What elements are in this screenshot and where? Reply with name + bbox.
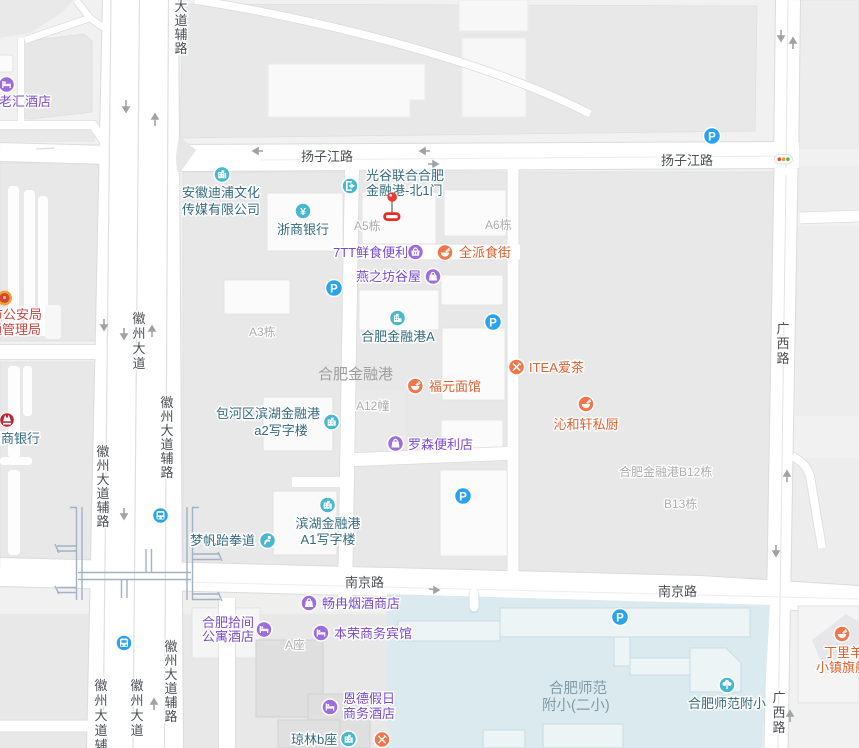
svg-text:a2写字楼: a2写字楼 bbox=[254, 423, 307, 438]
svg-text:畅冉烟酒商店: 畅冉烟酒商店 bbox=[322, 596, 400, 611]
svg-text:传媒有限公司: 传媒有限公司 bbox=[182, 202, 260, 217]
svg-text:大: 大 bbox=[130, 708, 143, 723]
svg-text:福元面馆: 福元面馆 bbox=[429, 379, 481, 394]
svg-text:金融港-北1门: 金融港-北1门 bbox=[366, 183, 443, 198]
svg-text:扬子江路: 扬子江路 bbox=[301, 149, 353, 164]
svg-text:丁里羊: 丁里羊 bbox=[824, 645, 859, 660]
svg-text:辅: 辅 bbox=[164, 695, 177, 710]
svg-text:商务酒店: 商务酒店 bbox=[343, 706, 395, 721]
svg-text:路: 路 bbox=[160, 465, 173, 480]
svg-text:琼林b座: 琼林b座 bbox=[291, 732, 337, 747]
svg-text:ITEA爱茶: ITEA爱茶 bbox=[529, 360, 584, 375]
svg-text:徽: 徽 bbox=[164, 639, 177, 654]
svg-text:沁和轩私厨: 沁和轩私厨 bbox=[553, 417, 618, 432]
svg-text:A1写字楼: A1写字楼 bbox=[301, 532, 356, 547]
svg-text:梦帆跆拳道: 梦帆跆拳道 bbox=[190, 533, 255, 548]
svg-text:公寓酒店: 公寓酒店 bbox=[202, 629, 254, 644]
svg-text:合肥金融港: 合肥金融港 bbox=[318, 366, 393, 383]
svg-text:南京路: 南京路 bbox=[658, 584, 697, 599]
svg-text:合肥师范: 合肥师范 bbox=[549, 680, 607, 697]
svg-text:道: 道 bbox=[174, 13, 187, 28]
svg-text:光谷联合合肥: 光谷联合合肥 bbox=[366, 168, 444, 183]
svg-text:A座: A座 bbox=[285, 637, 305, 652]
svg-text:包河区滨湖金融港: 包河区滨湖金融港 bbox=[216, 406, 320, 421]
svg-text:辅: 辅 bbox=[96, 500, 109, 515]
svg-text:南京路: 南京路 bbox=[345, 575, 384, 590]
svg-text:州: 州 bbox=[94, 693, 107, 708]
svg-text:西: 西 bbox=[776, 336, 789, 351]
svg-text:路: 路 bbox=[96, 514, 109, 529]
svg-text:市公安局: 市公安局 bbox=[0, 307, 42, 322]
svg-text:全派食街: 全派食街 bbox=[459, 245, 511, 260]
svg-text:道: 道 bbox=[132, 356, 145, 371]
svg-text:州: 州 bbox=[130, 693, 143, 708]
svg-text:州: 州 bbox=[160, 409, 173, 424]
svg-text:大: 大 bbox=[94, 708, 107, 723]
svg-text:安徽迪浦文化: 安徽迪浦文化 bbox=[182, 185, 260, 200]
svg-text:合肥拾间: 合肥拾间 bbox=[202, 615, 254, 630]
svg-text:大: 大 bbox=[96, 472, 109, 487]
svg-text:徽: 徽 bbox=[160, 395, 173, 410]
svg-text:燕之坊谷屋: 燕之坊谷屋 bbox=[356, 269, 421, 284]
svg-text:徽: 徽 bbox=[94, 678, 107, 693]
svg-text:浙商银行: 浙商银行 bbox=[277, 222, 329, 237]
svg-text:辅: 辅 bbox=[174, 27, 187, 42]
svg-text:州: 州 bbox=[164, 653, 177, 668]
svg-text:合肥师范附小: 合肥师范附小 bbox=[688, 696, 766, 711]
svg-text:A3栋: A3栋 bbox=[249, 324, 276, 339]
svg-text:附小(二小): 附小(二小) bbox=[542, 697, 610, 714]
svg-text:广: 广 bbox=[772, 690, 785, 705]
svg-text:滨湖金融港: 滨湖金融港 bbox=[295, 516, 360, 531]
svg-text:A6栋: A6栋 bbox=[485, 217, 512, 232]
svg-text:7TT鲜食便利: 7TT鲜食便利 bbox=[333, 245, 408, 260]
svg-text:大: 大 bbox=[174, 0, 187, 14]
svg-text:罗森便利店: 罗森便利店 bbox=[408, 437, 473, 452]
svg-text:路: 路 bbox=[174, 41, 187, 56]
svg-text:徽: 徽 bbox=[96, 444, 109, 459]
svg-text:扬子江路: 扬子江路 bbox=[661, 153, 713, 168]
svg-text:A5栋: A5栋 bbox=[354, 218, 381, 233]
svg-text:辅: 辅 bbox=[94, 738, 107, 748]
svg-text:路: 路 bbox=[772, 720, 785, 735]
svg-text:大: 大 bbox=[132, 341, 145, 356]
svg-text:合肥金融港A: 合肥金融港A bbox=[361, 329, 435, 344]
svg-text:A12幢: A12幢 bbox=[356, 398, 389, 413]
svg-text:路: 路 bbox=[164, 709, 177, 724]
svg-text:道: 道 bbox=[130, 723, 143, 738]
svg-text:西: 西 bbox=[772, 705, 785, 720]
svg-text:合肥金融港B12栋: 合肥金融港B12栋 bbox=[619, 464, 712, 479]
svg-text:道: 道 bbox=[164, 681, 177, 696]
svg-text:道: 道 bbox=[94, 723, 107, 738]
svg-text:招商银行: 招商银行 bbox=[0, 431, 40, 446]
svg-text:通管理局: 通管理局 bbox=[0, 322, 41, 337]
svg-text:道: 道 bbox=[160, 437, 173, 452]
svg-text:徽: 徽 bbox=[132, 311, 145, 326]
svg-text:老汇酒店: 老汇酒店 bbox=[0, 94, 51, 109]
svg-text:徽: 徽 bbox=[130, 678, 143, 693]
svg-text:道: 道 bbox=[96, 486, 109, 501]
svg-text:广: 广 bbox=[776, 321, 789, 336]
svg-text:州: 州 bbox=[132, 326, 145, 341]
svg-text:路: 路 bbox=[776, 351, 789, 366]
svg-text:小镇旗舰: 小镇旗舰 bbox=[816, 660, 859, 675]
svg-text:州: 州 bbox=[96, 458, 109, 473]
svg-text:辅: 辅 bbox=[160, 451, 173, 466]
svg-text:大: 大 bbox=[164, 667, 177, 682]
svg-text:本荣商务宾馆: 本荣商务宾馆 bbox=[334, 626, 412, 641]
svg-text:恩德假日: 恩德假日 bbox=[343, 691, 395, 706]
svg-text:大: 大 bbox=[160, 423, 173, 438]
svg-text:B13栋: B13栋 bbox=[664, 496, 697, 511]
